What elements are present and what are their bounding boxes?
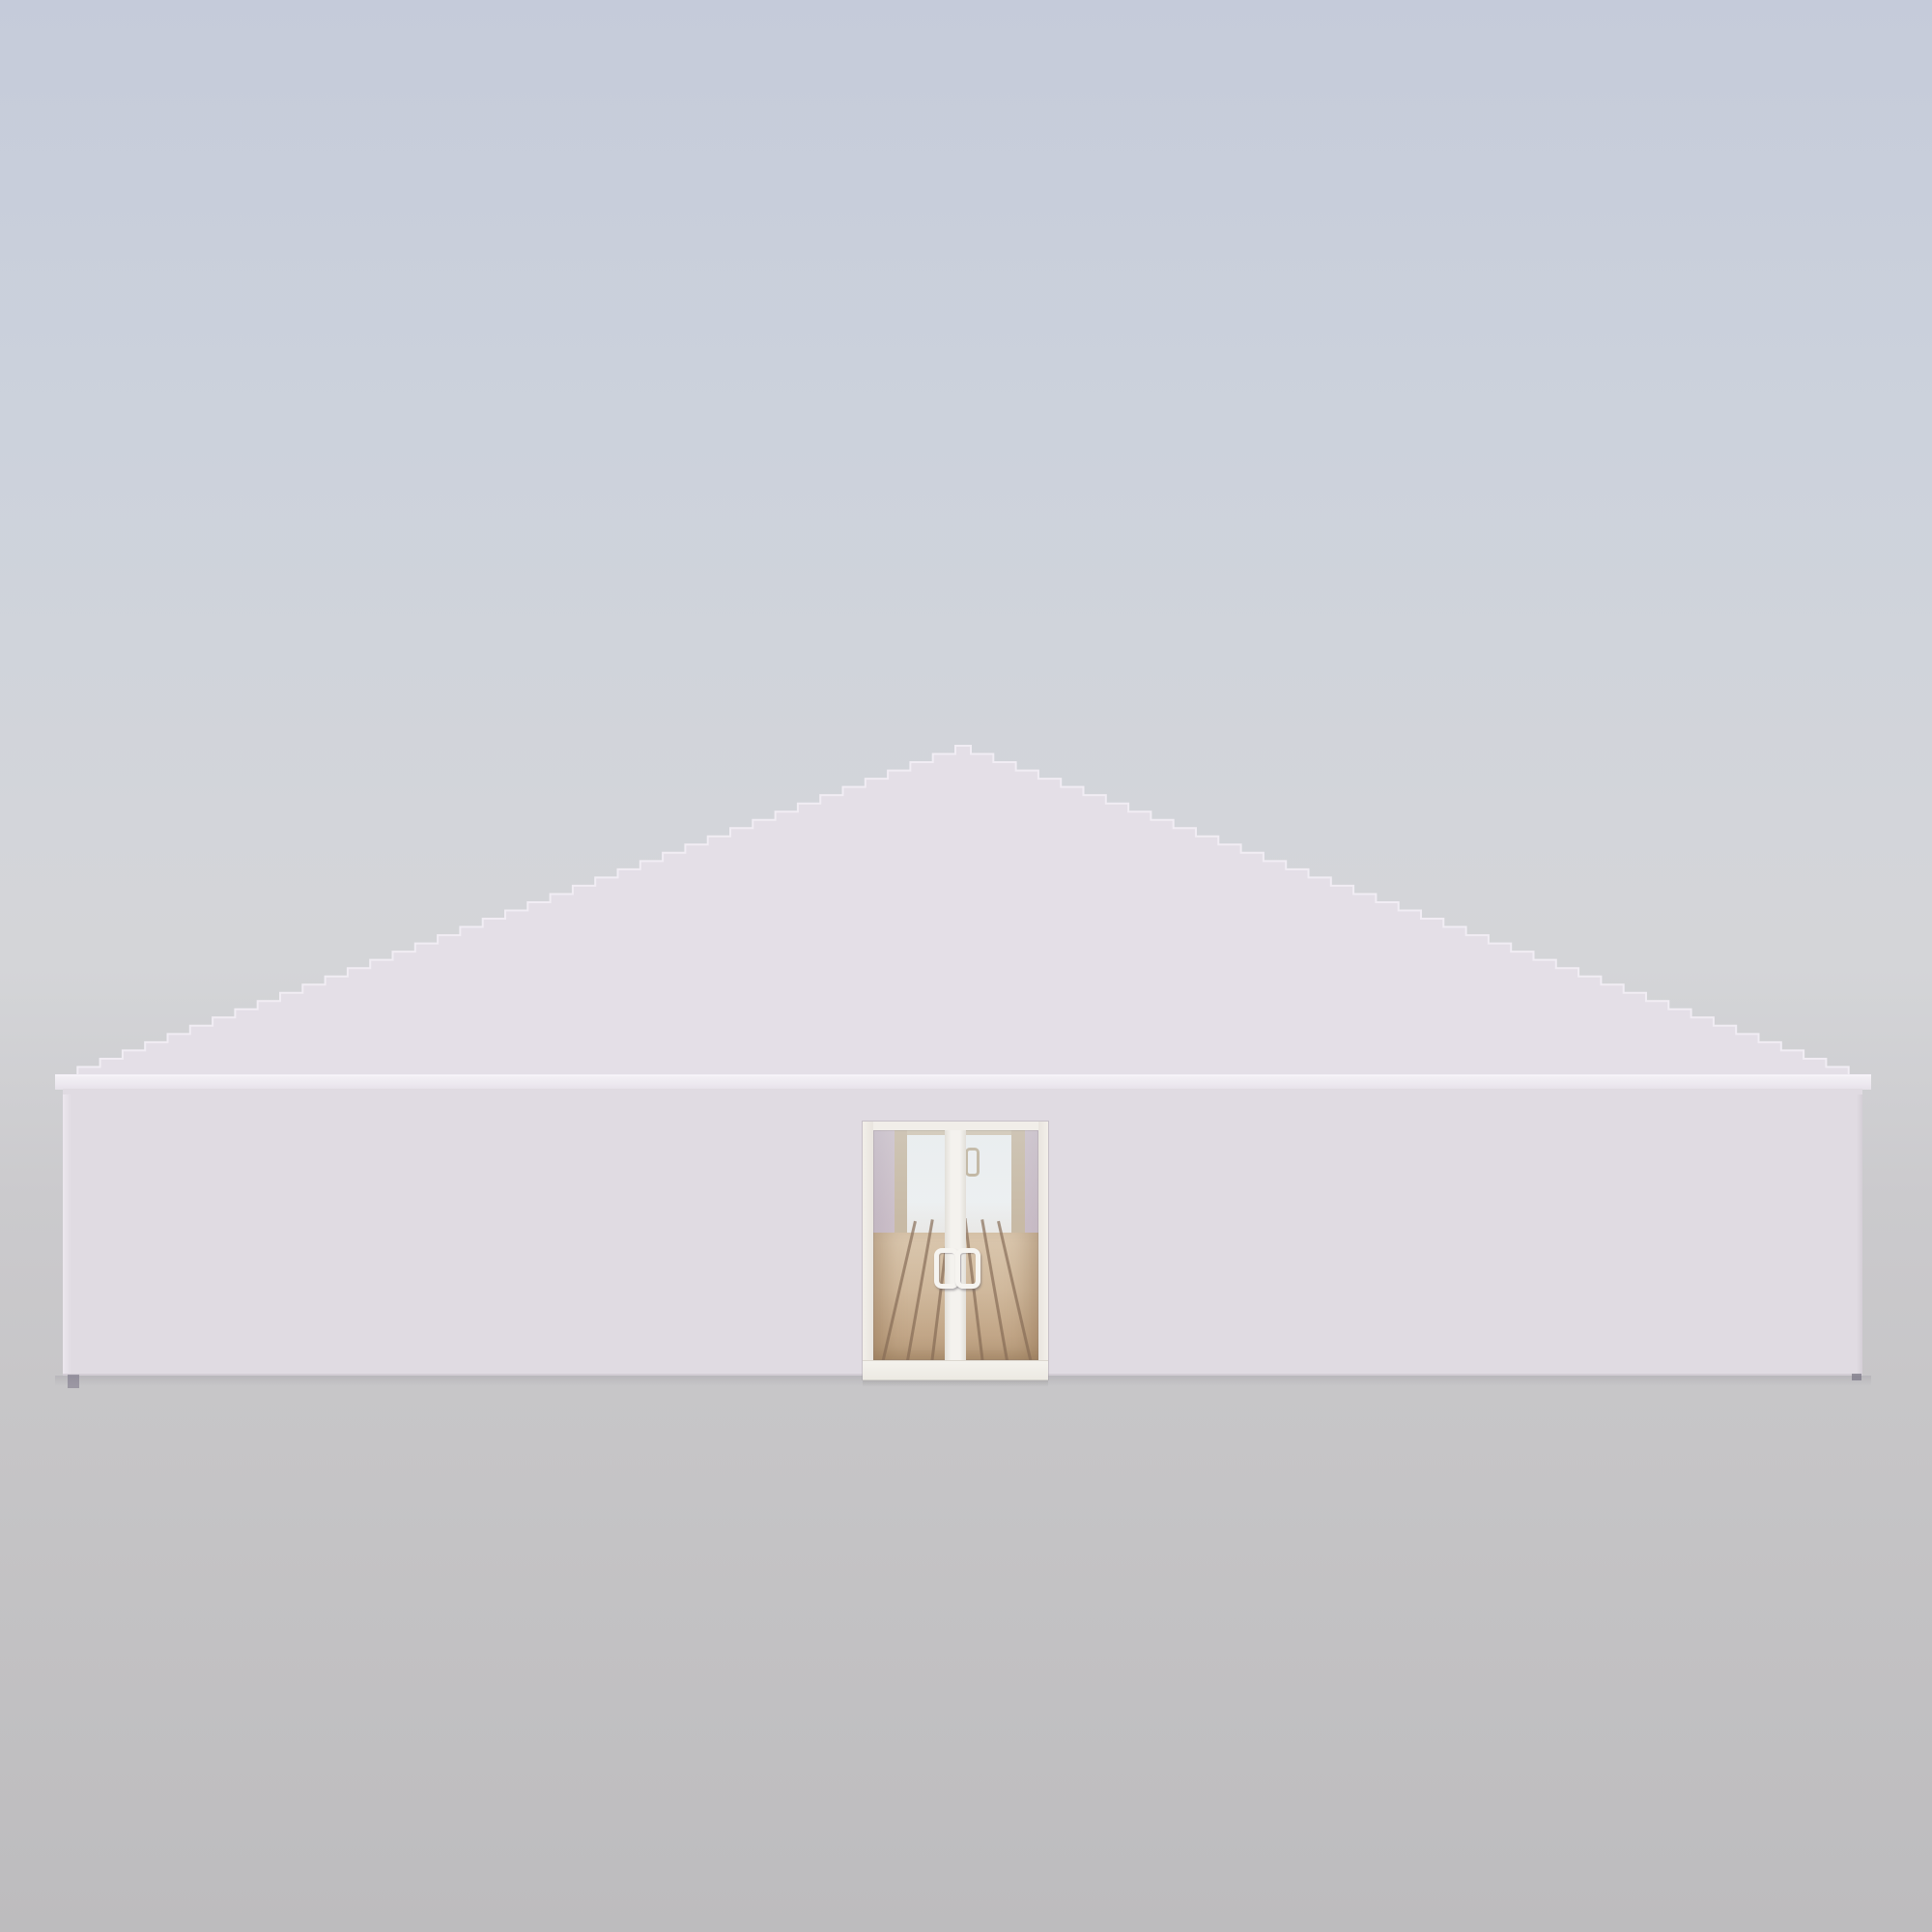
- roof-svg: [0, 0, 1932, 1932]
- wall-left-edge-highlight: [63, 1094, 71, 1376]
- roof-face: [55, 746, 1871, 1075]
- door-frame-jamb-left: [863, 1122, 873, 1379]
- door-mullion: [945, 1130, 966, 1360]
- eave-fascia: [55, 1075, 1871, 1090]
- door-frame-head: [863, 1122, 1048, 1130]
- entrance-double-door: [863, 1122, 1048, 1379]
- door-threshold-shadow: [863, 1379, 1048, 1387]
- tent-render-scene: [0, 0, 1932, 1932]
- door-handle-right: [955, 1248, 980, 1289]
- door-frame-jamb-right: [1038, 1122, 1048, 1379]
- door-sill: [863, 1360, 1048, 1380]
- wall-right-edge-shade: [1857, 1094, 1862, 1376]
